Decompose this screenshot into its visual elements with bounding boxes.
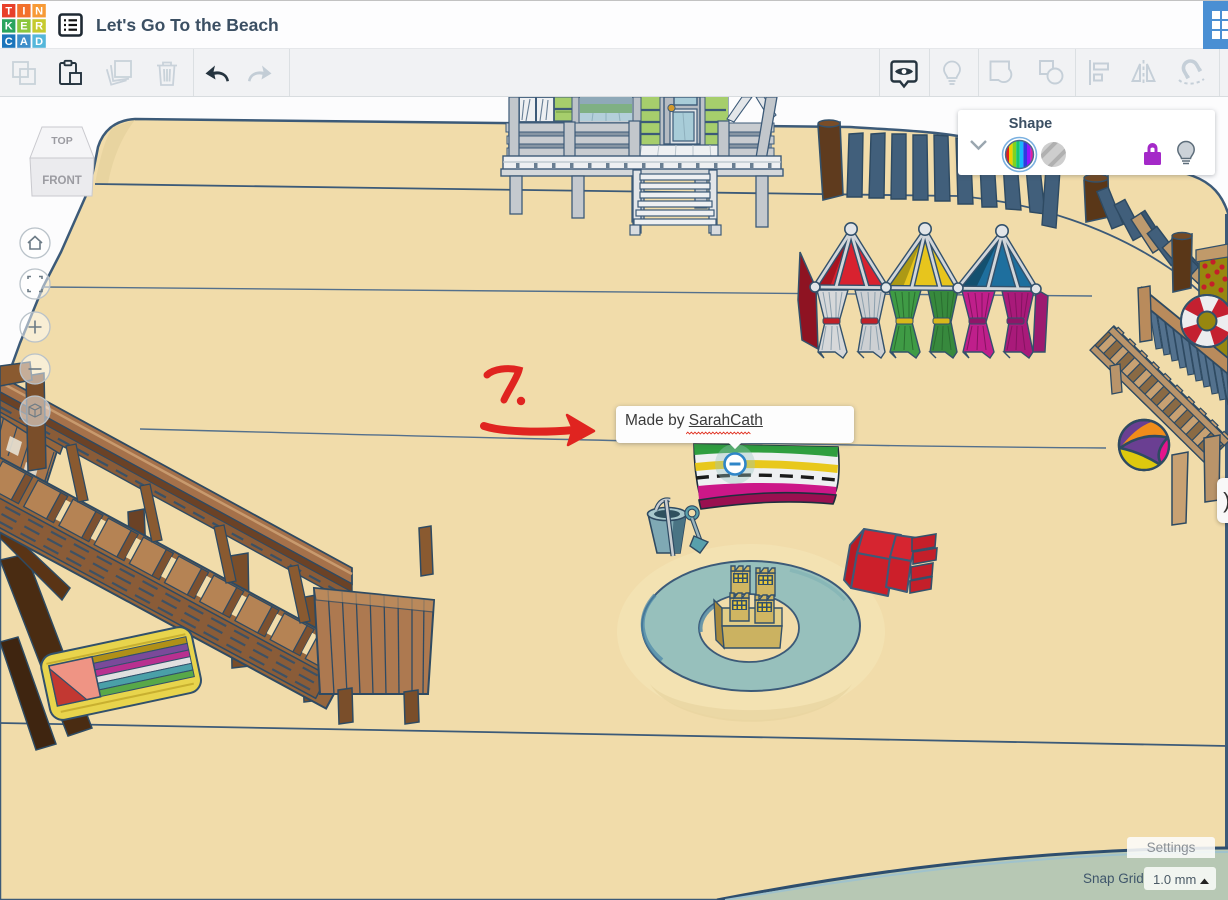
- svg-text:R: R: [35, 21, 43, 33]
- svg-text:TOP: TOP: [51, 135, 72, 147]
- svg-text:A: A: [20, 36, 28, 48]
- svg-text:C: C: [5, 36, 13, 48]
- svg-text:D: D: [35, 36, 43, 48]
- svg-text:E: E: [20, 21, 27, 33]
- svg-text:I: I: [22, 5, 25, 17]
- svg-text:FRONT: FRONT: [42, 175, 82, 187]
- svg-text:N: N: [35, 5, 43, 17]
- svg-text:T: T: [5, 5, 12, 17]
- svg-text:K: K: [5, 21, 13, 33]
